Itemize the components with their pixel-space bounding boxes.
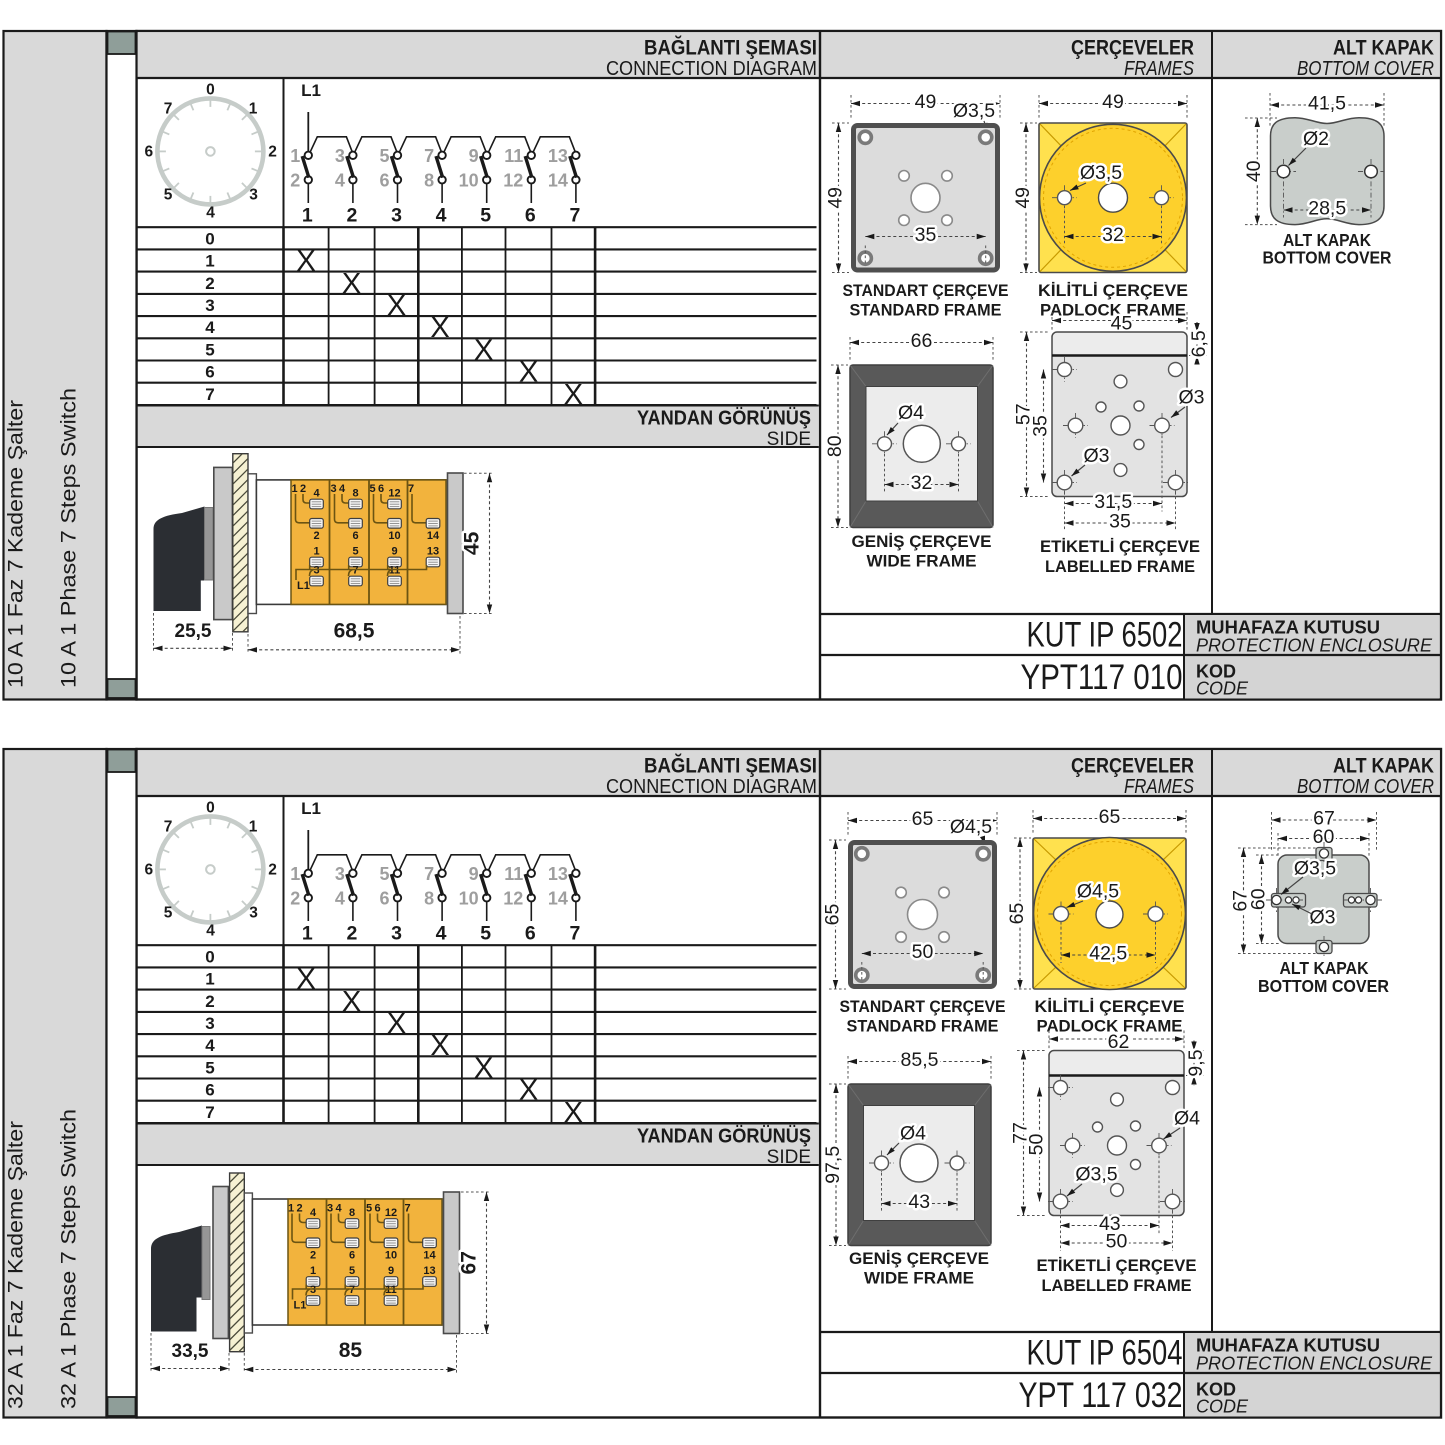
svg-text:Ø3,5: Ø3,5 xyxy=(1294,858,1336,880)
svg-text:7: 7 xyxy=(569,923,580,945)
svg-text:4: 4 xyxy=(313,488,320,500)
svg-text:2: 2 xyxy=(300,483,306,495)
svg-text:Ø4: Ø4 xyxy=(900,1123,926,1145)
svg-text:35: 35 xyxy=(1029,415,1051,437)
svg-text:2: 2 xyxy=(296,1203,302,1215)
svg-text:14: 14 xyxy=(423,1249,436,1261)
svg-text:11: 11 xyxy=(504,864,523,884)
svg-text:ALT KAPAK: ALT KAPAK xyxy=(1333,37,1434,60)
svg-text:Ø3: Ø3 xyxy=(1083,445,1109,467)
svg-text:13: 13 xyxy=(423,1265,435,1277)
svg-text:2: 2 xyxy=(310,1249,316,1261)
svg-text:BOTTOM COVER: BOTTOM COVER xyxy=(1263,248,1392,268)
svg-text:32: 32 xyxy=(1102,224,1124,246)
svg-text:45: 45 xyxy=(461,531,484,555)
svg-text:5: 5 xyxy=(349,1265,355,1277)
svg-text:35: 35 xyxy=(1109,511,1131,533)
svg-text:6: 6 xyxy=(378,483,384,495)
svg-text:X: X xyxy=(564,379,583,411)
svg-text:66: 66 xyxy=(911,330,933,352)
svg-text:28,5: 28,5 xyxy=(1308,198,1346,220)
svg-text:L1: L1 xyxy=(294,1300,307,1312)
svg-text:1: 1 xyxy=(313,546,319,558)
svg-text:FRAMES: FRAMES xyxy=(1124,776,1195,798)
svg-text:65: 65 xyxy=(1006,903,1028,925)
svg-text:ETİKETLİ ÇERÇEVE: ETİKETLİ ÇERÇEVE xyxy=(1037,1256,1197,1275)
svg-text:YPT 117 032: YPT 117 032 xyxy=(1019,1376,1183,1415)
svg-text:60: 60 xyxy=(1247,888,1269,910)
svg-text:9: 9 xyxy=(391,546,397,558)
svg-text:33,5: 33,5 xyxy=(172,1341,209,1362)
svg-text:Ø4,5: Ø4,5 xyxy=(1077,881,1119,903)
svg-text:6: 6 xyxy=(379,888,389,908)
svg-text:5: 5 xyxy=(480,205,491,227)
svg-text:10 A 1 Faz 7 Kademe Şalter: 10 A 1 Faz 7 Kademe Şalter xyxy=(5,400,28,688)
svg-text:4: 4 xyxy=(436,923,447,945)
svg-text:2: 2 xyxy=(346,923,357,945)
svg-text:STANDARD FRAME: STANDARD FRAME xyxy=(847,1017,999,1036)
svg-text:Ø2: Ø2 xyxy=(1303,128,1329,150)
svg-text:4: 4 xyxy=(206,923,215,940)
svg-text:5: 5 xyxy=(379,146,389,166)
svg-text:3: 3 xyxy=(330,483,336,495)
svg-text:3: 3 xyxy=(327,1203,333,1215)
svg-text:50: 50 xyxy=(1106,1231,1128,1253)
svg-text:10: 10 xyxy=(459,888,479,908)
svg-text:X: X xyxy=(519,357,538,389)
svg-text:9,5: 9,5 xyxy=(1185,1049,1207,1076)
svg-text:10: 10 xyxy=(385,1249,397,1261)
svg-text:2: 2 xyxy=(205,274,214,293)
svg-text:12: 12 xyxy=(503,170,523,190)
svg-text:13: 13 xyxy=(548,864,568,884)
svg-text:Ø3: Ø3 xyxy=(1309,907,1335,929)
svg-text:BAĞLANTI ŞEMASI: BAĞLANTI ŞEMASI xyxy=(644,754,817,778)
svg-text:X: X xyxy=(474,1052,493,1084)
svg-text:3: 3 xyxy=(249,187,258,204)
svg-text:KİLİTLİ ÇERÇEVE: KİLİTLİ ÇERÇEVE xyxy=(1035,997,1185,1016)
svg-text:4: 4 xyxy=(205,318,215,337)
svg-text:L1: L1 xyxy=(301,81,321,100)
svg-text:3: 3 xyxy=(310,1284,316,1296)
svg-text:3: 3 xyxy=(313,565,319,577)
svg-text:Ø3,5: Ø3,5 xyxy=(1075,1164,1117,1186)
svg-text:7: 7 xyxy=(349,1284,355,1296)
svg-text:49: 49 xyxy=(824,187,846,209)
svg-text:PROTECTION ENCLOSURE: PROTECTION ENCLOSURE xyxy=(1196,1354,1433,1374)
svg-text:42,5: 42,5 xyxy=(1089,943,1127,965)
svg-text:49: 49 xyxy=(915,91,937,113)
svg-text:4: 4 xyxy=(339,483,346,495)
svg-text:62: 62 xyxy=(1108,1031,1130,1053)
svg-text:3: 3 xyxy=(391,205,402,227)
svg-text:Ø3,5: Ø3,5 xyxy=(1080,162,1122,184)
svg-text:X: X xyxy=(474,334,493,366)
svg-text:32 A 1 Phase 7 Steps Switch: 32 A 1 Phase 7 Steps Switch xyxy=(58,1109,81,1409)
svg-text:35: 35 xyxy=(915,224,937,246)
svg-text:PROTECTION ENCLOSURE: PROTECTION ENCLOSURE xyxy=(1196,636,1433,656)
svg-text:50: 50 xyxy=(1025,1134,1047,1156)
svg-text:5: 5 xyxy=(205,340,214,359)
svg-text:STANDART ÇERÇEVE: STANDART ÇERÇEVE xyxy=(840,997,1006,1016)
svg-text:MUHAFAZA KUTUSU: MUHAFAZA KUTUSU xyxy=(1196,618,1380,638)
svg-text:85,5: 85,5 xyxy=(901,1049,939,1071)
svg-text:ÇERÇEVELER: ÇERÇEVELER xyxy=(1071,755,1194,778)
svg-text:67: 67 xyxy=(458,1251,481,1274)
svg-text:5: 5 xyxy=(164,187,173,204)
svg-text:6: 6 xyxy=(205,1081,214,1100)
svg-text:12: 12 xyxy=(503,888,523,908)
svg-text:6: 6 xyxy=(144,144,153,161)
svg-text:1: 1 xyxy=(290,864,300,884)
svg-text:FRAMES: FRAMES xyxy=(1124,58,1195,80)
svg-text:4: 4 xyxy=(310,1207,317,1219)
svg-text:25,5: 25,5 xyxy=(175,621,212,642)
svg-text:7: 7 xyxy=(408,483,414,495)
svg-text:2: 2 xyxy=(346,205,357,227)
svg-text:8: 8 xyxy=(424,888,434,908)
svg-text:80: 80 xyxy=(824,435,846,457)
svg-text:8: 8 xyxy=(349,1207,355,1219)
svg-text:13: 13 xyxy=(427,546,439,558)
svg-text:10: 10 xyxy=(459,170,479,190)
svg-text:LABELLED FRAME: LABELLED FRAME xyxy=(1042,1276,1192,1295)
svg-text:8: 8 xyxy=(352,488,358,500)
svg-text:6: 6 xyxy=(379,170,389,190)
svg-text:49: 49 xyxy=(1012,187,1034,209)
svg-text:CODE: CODE xyxy=(1196,1397,1249,1417)
svg-text:X: X xyxy=(564,1097,583,1129)
svg-text:YANDAN GÖRÜNÜŞ: YANDAN GÖRÜNÜŞ xyxy=(637,1125,811,1148)
svg-text:GENİŞ ÇERÇEVE: GENİŞ ÇERÇEVE xyxy=(852,532,992,551)
svg-text:3: 3 xyxy=(335,864,345,884)
svg-text:6: 6 xyxy=(349,1249,355,1261)
svg-text:0: 0 xyxy=(206,800,215,817)
svg-text:STANDARD FRAME: STANDARD FRAME xyxy=(850,301,1002,320)
svg-text:65: 65 xyxy=(912,808,934,830)
svg-text:Ø3: Ø3 xyxy=(1178,387,1204,409)
svg-text:6: 6 xyxy=(144,862,153,879)
svg-text:5: 5 xyxy=(379,864,389,884)
svg-text:7: 7 xyxy=(424,146,434,166)
svg-text:ETİKETLİ ÇERÇEVE: ETİKETLİ ÇERÇEVE xyxy=(1040,537,1200,556)
svg-text:3: 3 xyxy=(249,905,258,922)
svg-text:1: 1 xyxy=(205,252,214,271)
svg-text:Ø4: Ø4 xyxy=(1174,1108,1200,1130)
svg-text:1: 1 xyxy=(290,146,300,166)
svg-text:1: 1 xyxy=(310,1265,316,1277)
svg-text:BOTTOM COVER: BOTTOM COVER xyxy=(1258,976,1389,996)
svg-text:9: 9 xyxy=(388,1265,394,1277)
svg-text:5: 5 xyxy=(480,923,491,945)
svg-text:0: 0 xyxy=(205,229,214,248)
svg-text:X: X xyxy=(342,986,361,1018)
svg-text:11: 11 xyxy=(504,146,523,166)
svg-text:GENİŞ ÇERÇEVE: GENİŞ ÇERÇEVE xyxy=(849,1249,989,1268)
svg-text:1: 1 xyxy=(302,923,313,945)
svg-text:ÇERÇEVELER: ÇERÇEVELER xyxy=(1071,37,1194,60)
svg-text:32: 32 xyxy=(911,472,933,494)
svg-text:X: X xyxy=(387,1008,406,1040)
svg-text:5: 5 xyxy=(369,483,375,495)
svg-text:50: 50 xyxy=(912,941,934,963)
svg-text:2: 2 xyxy=(268,144,277,161)
svg-text:68,5: 68,5 xyxy=(334,619,375,642)
svg-text:85: 85 xyxy=(339,1339,363,1362)
svg-text:9: 9 xyxy=(469,146,479,166)
svg-text:KİLİTLİ ÇERÇEVE: KİLİTLİ ÇERÇEVE xyxy=(1038,281,1188,300)
svg-text:Ø3,5: Ø3,5 xyxy=(953,100,995,122)
svg-text:7: 7 xyxy=(164,101,173,118)
svg-text:43: 43 xyxy=(908,1191,930,1213)
svg-text:7: 7 xyxy=(164,819,173,836)
svg-text:97,5: 97,5 xyxy=(822,1146,844,1184)
svg-text:14: 14 xyxy=(427,530,440,542)
svg-text:9: 9 xyxy=(469,864,479,884)
svg-text:7: 7 xyxy=(205,385,214,404)
svg-text:3: 3 xyxy=(205,296,214,315)
svg-text:5: 5 xyxy=(164,905,173,922)
svg-text:BOTTOM COVER: BOTTOM COVER xyxy=(1297,58,1434,80)
svg-text:6: 6 xyxy=(352,530,358,542)
svg-text:2: 2 xyxy=(268,862,277,879)
svg-text:3: 3 xyxy=(391,923,402,945)
svg-text:L1: L1 xyxy=(297,580,310,592)
svg-text:7: 7 xyxy=(404,1203,410,1215)
svg-text:12: 12 xyxy=(385,1207,397,1219)
svg-text:6: 6 xyxy=(525,205,536,227)
svg-text:X: X xyxy=(296,964,315,996)
svg-text:SIDE: SIDE xyxy=(767,429,811,450)
svg-text:41,5: 41,5 xyxy=(1308,93,1346,115)
svg-text:YPT117 010: YPT117 010 xyxy=(1021,658,1183,697)
svg-text:2: 2 xyxy=(290,888,300,908)
svg-text:6: 6 xyxy=(374,1203,380,1215)
svg-text:BOTTOM COVER: BOTTOM COVER xyxy=(1297,776,1434,798)
svg-text:7: 7 xyxy=(424,864,434,884)
svg-text:0: 0 xyxy=(205,947,214,966)
svg-text:BAĞLANTI ŞEMASI: BAĞLANTI ŞEMASI xyxy=(644,36,817,60)
svg-text:4: 4 xyxy=(205,1036,215,1055)
svg-text:X: X xyxy=(430,312,449,344)
svg-text:X: X xyxy=(519,1075,538,1107)
svg-text:65: 65 xyxy=(821,904,843,926)
svg-text:0: 0 xyxy=(206,82,215,99)
svg-text:7: 7 xyxy=(205,1103,214,1122)
svg-text:1: 1 xyxy=(302,205,313,227)
svg-text:5: 5 xyxy=(352,546,358,558)
svg-text:LABELLED FRAME: LABELLED FRAME xyxy=(1045,557,1195,576)
svg-text:MUHAFAZA KUTUSU: MUHAFAZA KUTUSU xyxy=(1196,1336,1380,1356)
svg-text:ALT KAPAK: ALT KAPAK xyxy=(1333,755,1434,778)
svg-text:45: 45 xyxy=(1111,313,1133,335)
svg-text:7: 7 xyxy=(569,205,580,227)
svg-text:10: 10 xyxy=(388,530,400,542)
svg-text:WIDE FRAME: WIDE FRAME xyxy=(867,552,977,571)
svg-text:Ø4: Ø4 xyxy=(898,402,924,424)
svg-text:40: 40 xyxy=(1243,160,1265,182)
svg-text:X: X xyxy=(342,268,361,300)
svg-text:3: 3 xyxy=(335,146,345,166)
svg-text:1: 1 xyxy=(249,101,258,118)
svg-text:32 A 1 Faz 7 Kademe Şalter: 32 A 1 Faz 7 Kademe Şalter xyxy=(5,1121,28,1409)
svg-text:65: 65 xyxy=(1099,806,1121,828)
svg-text:WIDE FRAME: WIDE FRAME xyxy=(864,1269,974,1288)
svg-text:13: 13 xyxy=(548,146,568,166)
svg-text:4: 4 xyxy=(335,1203,342,1215)
svg-text:2: 2 xyxy=(313,530,319,542)
svg-text:1: 1 xyxy=(205,970,214,989)
svg-text:1: 1 xyxy=(291,483,297,495)
svg-text:Ø4,5: Ø4,5 xyxy=(950,816,992,838)
svg-text:3: 3 xyxy=(205,1014,214,1033)
svg-text:L1: L1 xyxy=(301,799,321,818)
svg-text:14: 14 xyxy=(548,170,568,190)
svg-text:6: 6 xyxy=(205,363,214,382)
svg-text:CODE: CODE xyxy=(1196,679,1249,699)
svg-text:4: 4 xyxy=(335,888,345,908)
svg-text:KUT IP 6504: KUT IP 6504 xyxy=(1027,1334,1183,1373)
svg-text:12: 12 xyxy=(388,488,400,500)
svg-text:2: 2 xyxy=(205,992,214,1011)
svg-text:X: X xyxy=(296,246,315,278)
svg-text:5: 5 xyxy=(205,1058,214,1077)
svg-text:4: 4 xyxy=(206,205,215,222)
svg-text:YANDAN GÖRÜNÜŞ: YANDAN GÖRÜNÜŞ xyxy=(637,407,811,430)
svg-text:7: 7 xyxy=(352,565,358,577)
svg-text:CONNECTION DIAGRAM: CONNECTION DIAGRAM xyxy=(606,58,817,80)
svg-text:KUT IP 6502: KUT IP 6502 xyxy=(1027,616,1183,655)
svg-text:6,5: 6,5 xyxy=(1188,330,1210,357)
svg-text:6: 6 xyxy=(525,923,536,945)
svg-text:4: 4 xyxy=(335,170,345,190)
svg-text:4: 4 xyxy=(436,205,447,227)
svg-text:ALT KAPAK: ALT KAPAK xyxy=(1280,958,1369,978)
svg-text:SIDE: SIDE xyxy=(767,1147,811,1168)
svg-text:8: 8 xyxy=(424,170,434,190)
svg-text:X: X xyxy=(430,1030,449,1062)
svg-text:10 A 1 Phase 7 Steps Switch: 10 A 1 Phase 7 Steps Switch xyxy=(58,388,81,688)
svg-text:2: 2 xyxy=(290,170,300,190)
svg-text:STANDART ÇERÇEVE: STANDART ÇERÇEVE xyxy=(843,281,1009,300)
svg-text:1: 1 xyxy=(288,1203,294,1215)
svg-text:5: 5 xyxy=(366,1203,372,1215)
svg-text:X: X xyxy=(387,290,406,322)
svg-text:49: 49 xyxy=(1102,91,1124,113)
svg-text:14: 14 xyxy=(548,888,568,908)
svg-text:1: 1 xyxy=(249,819,258,836)
svg-text:CONNECTION DIAGRAM: CONNECTION DIAGRAM xyxy=(606,776,817,798)
